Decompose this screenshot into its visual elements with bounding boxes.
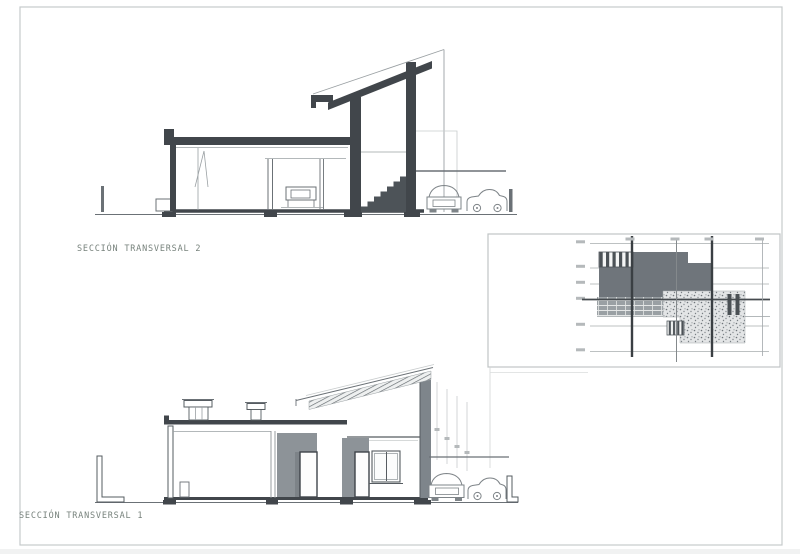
- detail-leader-lines: [490, 367, 588, 468]
- chimney-large: [182, 400, 214, 421]
- cross-section-2-drawing: [95, 50, 517, 218]
- shed-roof: [296, 365, 434, 410]
- right-shaded-wall: [420, 374, 431, 498]
- architectural-drawing-canvas: [0, 0, 800, 560]
- section-2-label: SECCIÓN TRANSVERSAL 2: [77, 244, 201, 254]
- car-side-icon: [468, 478, 506, 500]
- exterior-step: [156, 199, 172, 211]
- flat-roof-slab: [164, 129, 350, 148]
- window: [369, 451, 403, 484]
- carport: [429, 457, 518, 502]
- car-side-icon: [467, 190, 507, 212]
- staircase: [361, 177, 406, 213]
- fireplace: [180, 482, 189, 497]
- boundary-post: [101, 186, 104, 212]
- chimney-small: [245, 403, 267, 421]
- left-exterior-wall: [168, 426, 173, 498]
- carport-end-post: [507, 476, 518, 502]
- cross-section-1-drawing: [95, 365, 518, 505]
- carport: [416, 171, 513, 213]
- bed-furniture: [281, 187, 323, 208]
- ground-line: [95, 499, 518, 505]
- construction-detail-drawing: [488, 234, 780, 468]
- left-exterior-wall: [170, 145, 176, 211]
- section-1-label: SECCIÓN TRANSVERSAL 1: [19, 511, 143, 521]
- door-b: [355, 452, 369, 497]
- drawing-sheet: SECCIÓN TRANSVERSAL 2 SECCIÓN TRANSVERSA…: [0, 0, 800, 560]
- interior-partitions: [195, 148, 346, 210]
- car-front-icon: [429, 474, 464, 502]
- detail-insulation-block: [667, 321, 684, 335]
- middle-volume: [277, 433, 421, 497]
- door-a: [300, 452, 317, 497]
- retaining-wall-left: [97, 456, 124, 502]
- flat-roof-slab: [164, 416, 347, 499]
